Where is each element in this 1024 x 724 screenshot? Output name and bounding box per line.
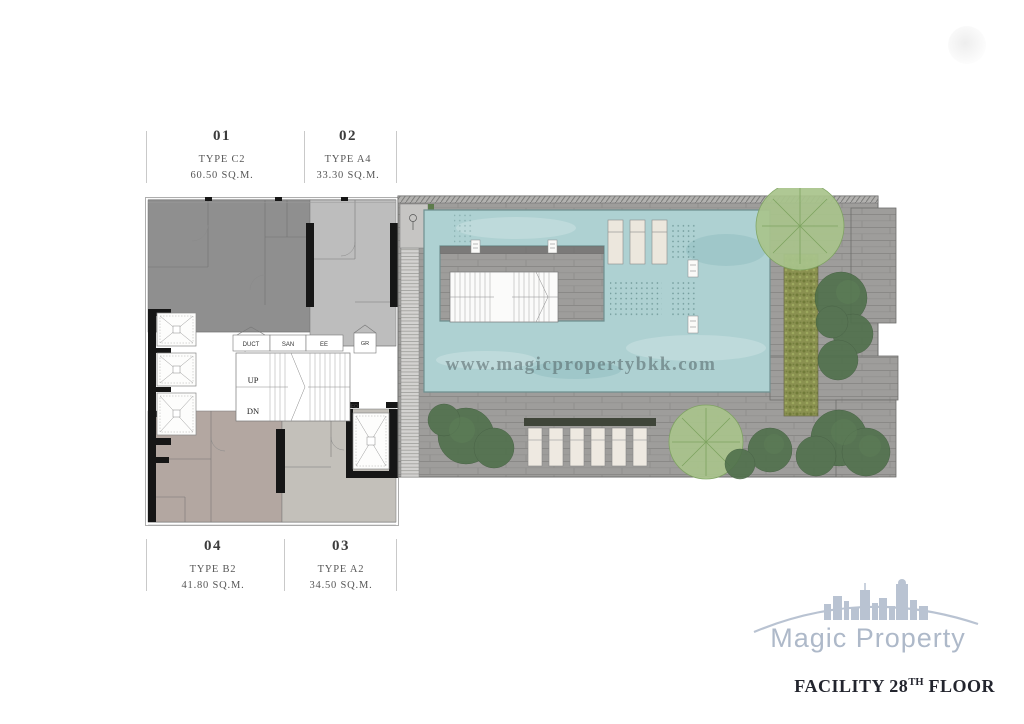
corner-watermark (948, 26, 986, 64)
unit-label-02: 02 TYPE A4 33.30 SQ.M. (288, 128, 408, 185)
facility-floor-caption: FACILITY 28TH FLOOR (690, 676, 995, 697)
ee-label: EE (320, 342, 328, 348)
island-staircase (450, 272, 558, 322)
label-divider (396, 539, 397, 591)
label-divider (284, 539, 285, 591)
lounge-chair (652, 220, 667, 264)
fo-label: FO (351, 404, 358, 410)
unit-label-03: 03 TYPE A2 34.50 SQ.M. (281, 538, 401, 595)
label-divider (396, 131, 397, 183)
gr-label: GR (361, 341, 369, 347)
lounge-chair (630, 220, 645, 264)
unit-number: 04 (153, 538, 273, 555)
elevator (353, 413, 389, 469)
pool-lounge-chairs (608, 220, 667, 264)
unit-c2-area (148, 200, 310, 332)
unit-type: TYPE A2 (281, 562, 401, 578)
access-steps (401, 248, 419, 477)
elevators-left (157, 313, 196, 435)
logo-graphic: Magic Property (746, 570, 990, 654)
unit-label-01: 01 TYPE C2 60.50 SQ.M. (162, 128, 282, 185)
unit-type: TYPE B2 (153, 562, 273, 578)
facility-deck-plan (396, 188, 906, 484)
san-label: SAN (282, 342, 294, 348)
watermark-text: www.magicpropertybkk.com (418, 354, 744, 376)
caption-main: FACILITY 28 (794, 676, 908, 696)
lounge-chair (608, 220, 623, 264)
unit-a4-area (310, 200, 396, 346)
elevator (157, 353, 196, 386)
dn-label: DN (247, 406, 259, 416)
tree (756, 188, 844, 270)
staircase: UP DN (236, 353, 350, 421)
caption-superscript: TH (908, 677, 923, 688)
sun-bed (528, 428, 542, 466)
magic-property-logo: Magic Property (746, 570, 990, 654)
island-edge (440, 246, 604, 254)
sun-bed (549, 428, 563, 466)
unit-area: 34.50 SQ.M. (281, 578, 401, 594)
unit-area: 41.80 SQ.M. (153, 578, 273, 594)
floorplan-page: 01 TYPE C2 60.50 SQ.M. 02 TYPE A4 33.30 … (0, 0, 1024, 724)
unit-number: 01 (162, 128, 282, 145)
unit-area: 60.50 SQ.M. (162, 168, 282, 184)
unit-type: TYPE C2 (162, 152, 282, 168)
residential-units-plan: DUCT SAN EE GR (145, 197, 399, 526)
bed-planter (524, 418, 656, 426)
unit-area: 33.30 SQ.M. (288, 168, 408, 184)
unit-label-04: 04 TYPE B2 41.80 SQ.M. (153, 538, 273, 595)
sun-bed (612, 428, 626, 466)
unit-number: 02 (288, 128, 408, 145)
sun-bed (633, 428, 647, 466)
skyline-icon (824, 579, 928, 620)
label-divider (146, 131, 147, 183)
logo-text: Magic Property (770, 623, 966, 653)
elevator (157, 313, 196, 346)
label-divider (304, 131, 305, 183)
sun-bed (591, 428, 605, 466)
unit-type: TYPE A4 (288, 152, 408, 168)
up-label: UP (248, 375, 259, 385)
green-wall-planter (784, 254, 818, 416)
unit-number: 03 (281, 538, 401, 555)
caption-tail: FLOOR (923, 676, 995, 696)
duct-label: DUCT (243, 342, 260, 348)
elevator (157, 393, 196, 435)
sun-bed (570, 428, 584, 466)
label-divider (146, 539, 147, 591)
